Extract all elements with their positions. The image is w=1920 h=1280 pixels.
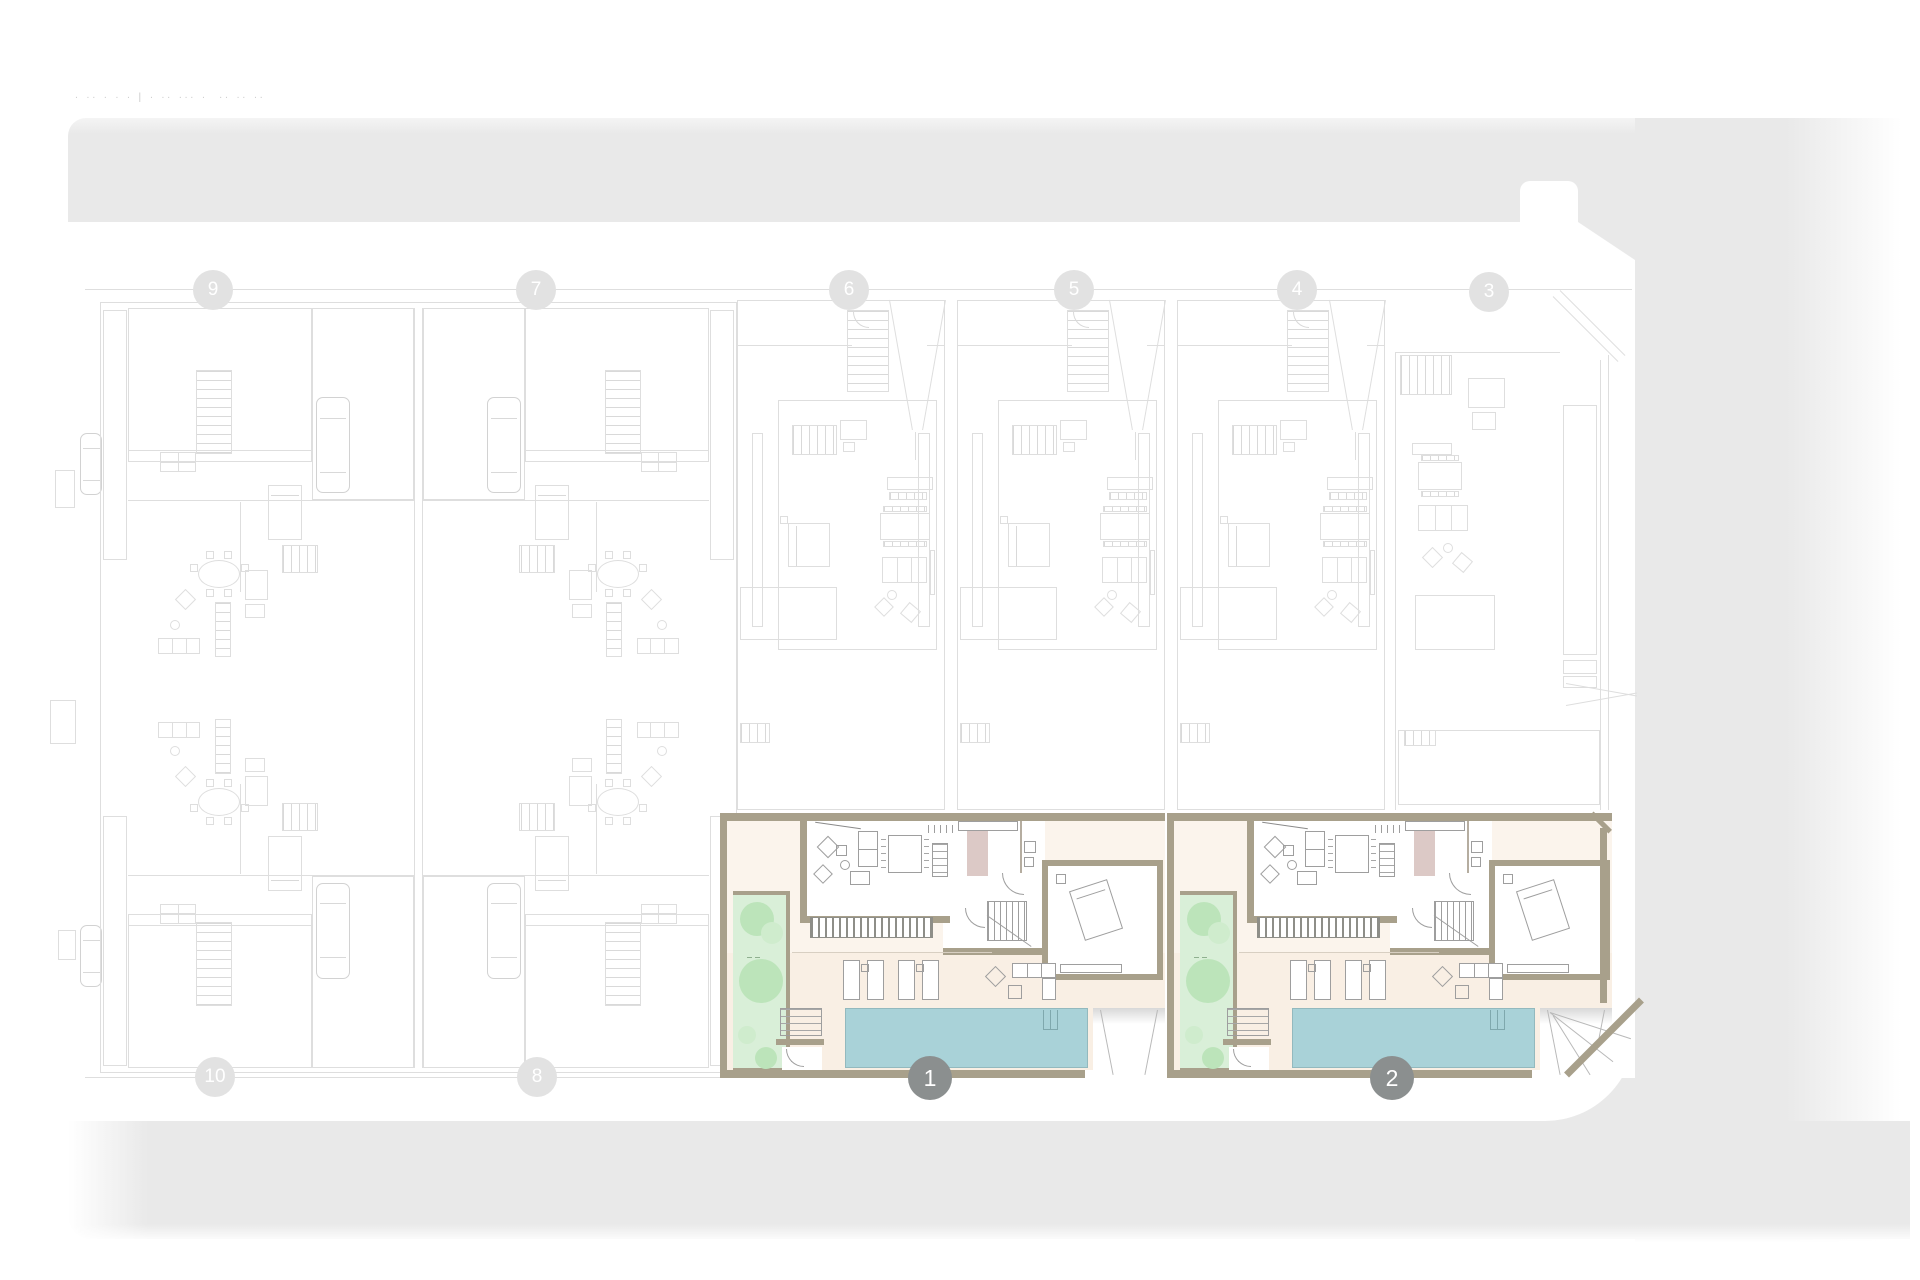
armchair xyxy=(1297,871,1317,885)
highlighted-unit xyxy=(1167,813,1612,1078)
dining-table xyxy=(597,788,639,816)
sofa xyxy=(858,831,878,867)
pergola-deck xyxy=(810,917,933,938)
villa-unit xyxy=(957,300,1165,810)
sun-lounger xyxy=(867,960,884,1000)
outbuilding xyxy=(58,930,76,960)
sun-lounger xyxy=(1290,960,1307,1000)
wall xyxy=(1223,1039,1271,1045)
stairs xyxy=(1400,355,1452,395)
tree xyxy=(1202,1047,1224,1069)
sofa xyxy=(1418,505,1468,531)
outbuilding xyxy=(55,470,75,508)
wardrobe xyxy=(196,370,232,454)
entry-stairs xyxy=(780,1008,822,1036)
bed xyxy=(535,485,569,540)
corridor xyxy=(1563,405,1597,655)
side-table xyxy=(840,860,850,870)
patio xyxy=(1415,595,1495,650)
bed xyxy=(268,485,302,540)
car xyxy=(80,433,102,495)
planter xyxy=(752,433,763,627)
sun-lounger xyxy=(1369,960,1386,1000)
kitchen-island xyxy=(932,843,948,877)
plot-marker-6[interactable]: 6 xyxy=(829,270,869,310)
sofa xyxy=(158,722,200,738)
partition xyxy=(1020,821,1022,873)
bed xyxy=(268,836,302,891)
wall xyxy=(720,813,727,1078)
site-plan-canvas: ∙ ∙∙ ∙ ∙ ∙ | ∙ ∙∙ ∙∙∙ ∙ ∙∙ ∙∙ ∙∙ xyxy=(0,0,1920,1280)
tree xyxy=(1186,959,1230,1003)
corner-villa-unit xyxy=(1395,300,1640,810)
plot-marker-label: 3 xyxy=(1484,281,1495,303)
stairs xyxy=(1012,425,1057,455)
sun-lounger xyxy=(1314,960,1331,1000)
bed xyxy=(1228,523,1270,567)
bedroom xyxy=(1489,860,1610,980)
outdoor-table xyxy=(1455,985,1469,999)
kitchen-counter xyxy=(958,821,1018,831)
tree xyxy=(739,959,783,1003)
wall xyxy=(1167,813,1174,1078)
bed xyxy=(788,523,830,567)
side-table xyxy=(1287,860,1297,870)
dining-table xyxy=(1418,462,1462,490)
duplex-unit xyxy=(420,686,737,1074)
outdoor-sofa xyxy=(1459,963,1503,978)
bed xyxy=(1516,879,1570,941)
kitchen xyxy=(606,719,622,774)
wardrobe xyxy=(605,370,641,454)
sun-lounger xyxy=(1345,960,1362,1000)
dining-table xyxy=(198,560,240,588)
plot-marker-8[interactable]: 8 xyxy=(517,1057,557,1097)
armchair xyxy=(175,589,196,610)
plot-marker-label: 7 xyxy=(531,279,542,301)
plot-marker-label: 1 xyxy=(924,1065,937,1092)
plot-marker-10[interactable]: 10 xyxy=(195,1057,235,1097)
planter xyxy=(1192,433,1203,627)
dining-table xyxy=(198,788,240,816)
sofa xyxy=(637,638,679,654)
outdoor-table xyxy=(1008,985,1022,999)
driveway xyxy=(312,308,414,500)
sun-lounger xyxy=(922,960,939,1000)
plot-marker-label: 2 xyxy=(1386,1065,1399,1092)
bedroom xyxy=(1042,860,1163,980)
driveway xyxy=(312,876,414,1068)
plot-marker-label: 6 xyxy=(844,279,855,301)
duplex-unit xyxy=(420,302,737,690)
wall xyxy=(1247,821,1254,923)
plot-marker-9[interactable]: 9 xyxy=(193,270,233,310)
bar-stools xyxy=(1375,825,1401,833)
driveway xyxy=(423,876,525,1068)
dining-table xyxy=(888,835,922,873)
armchair xyxy=(175,766,196,787)
plot-marker-label: 10 xyxy=(204,1066,225,1088)
kitchen-counter xyxy=(1412,443,1452,455)
tree xyxy=(755,1047,777,1069)
tree xyxy=(761,922,783,944)
stairs xyxy=(1232,425,1277,455)
wall xyxy=(1600,828,1607,1003)
wardrobe xyxy=(196,922,232,1006)
tree xyxy=(1208,922,1230,944)
side-table xyxy=(861,964,869,972)
dining-chairs xyxy=(924,839,929,869)
plot-marker-label: 4 xyxy=(1292,279,1303,301)
wall xyxy=(776,1039,824,1045)
entry-stairs xyxy=(1227,1008,1269,1036)
tree xyxy=(738,1026,756,1044)
highlighted-unit xyxy=(720,813,1165,1078)
kitchen-counter xyxy=(1405,821,1465,831)
pergola-deck xyxy=(1257,917,1380,938)
planter xyxy=(918,433,930,627)
plot-marker-5[interactable]: 5 xyxy=(1054,270,1094,310)
dining-chairs xyxy=(1371,839,1376,869)
terrace-line xyxy=(792,952,992,953)
stairs xyxy=(792,425,837,455)
plot-marker-4[interactable]: 4 xyxy=(1277,270,1317,310)
planter xyxy=(1358,433,1370,627)
duplex-unit xyxy=(100,302,417,690)
sofa xyxy=(158,638,200,654)
wall xyxy=(720,813,1165,821)
bed xyxy=(535,836,569,891)
sun-lounger xyxy=(843,960,860,1000)
plot-marker-label: 9 xyxy=(208,279,219,301)
nightstand xyxy=(1503,874,1513,884)
armchair xyxy=(850,871,870,885)
dining-chairs xyxy=(1328,839,1333,869)
dining-chairs xyxy=(881,839,886,869)
pool xyxy=(1292,1008,1535,1068)
stairs xyxy=(282,803,318,831)
tree xyxy=(1185,1026,1203,1044)
outdoor-sofa xyxy=(1042,978,1056,1000)
partition xyxy=(1467,821,1469,873)
armchair xyxy=(641,589,662,610)
bed xyxy=(1069,879,1123,941)
plot-marker-label: 5 xyxy=(1069,279,1080,301)
bench xyxy=(1507,964,1569,973)
basin xyxy=(1471,857,1481,867)
kitchen xyxy=(215,719,231,774)
duplex-unit xyxy=(100,686,417,1074)
wall xyxy=(1167,813,1612,821)
driveway xyxy=(1093,1008,1165,1078)
stairs xyxy=(519,545,555,573)
kitchen xyxy=(215,602,231,657)
wardrobe xyxy=(605,922,641,1006)
plot-marker-2[interactable]: 2 xyxy=(1370,1056,1414,1100)
coffee-table xyxy=(1283,845,1294,856)
plot-marker-1[interactable]: 1 xyxy=(908,1056,952,1100)
plot-marker-3[interactable]: 3 xyxy=(1469,272,1509,312)
outbuilding xyxy=(50,700,76,744)
driveway xyxy=(423,308,525,500)
villa-unit xyxy=(737,300,945,810)
dining-table xyxy=(597,560,639,588)
plot-marker-label: 8 xyxy=(532,1066,543,1088)
sofa xyxy=(1305,831,1325,867)
faded-plans-layer xyxy=(0,0,1920,1280)
toilet xyxy=(1471,841,1483,853)
pool xyxy=(845,1008,1088,1068)
outdoor-sofa xyxy=(1489,978,1503,1000)
sun-lounger xyxy=(898,960,915,1000)
bench xyxy=(1060,964,1122,973)
kitchen xyxy=(606,602,622,657)
street-line-bottom xyxy=(85,1077,737,1078)
basin xyxy=(1024,857,1034,867)
dining-table xyxy=(1335,835,1369,873)
armchair xyxy=(1452,552,1473,573)
villa-unit xyxy=(1177,300,1385,810)
car xyxy=(80,925,102,987)
side-table xyxy=(1363,964,1371,972)
bar-stools xyxy=(928,825,954,833)
toilet xyxy=(1024,841,1036,853)
armchair xyxy=(641,766,662,787)
side-table xyxy=(1308,964,1316,972)
wall xyxy=(800,821,807,923)
wardrobe xyxy=(1414,831,1435,876)
planter xyxy=(972,433,983,627)
nightstand xyxy=(1056,874,1066,884)
plot-marker-7[interactable]: 7 xyxy=(516,270,556,310)
sofa xyxy=(637,722,679,738)
armchair xyxy=(1422,547,1443,568)
wardrobe xyxy=(967,831,988,876)
side-table xyxy=(916,964,924,972)
stairs xyxy=(519,803,555,831)
outdoor-sofa xyxy=(1012,963,1056,978)
planter xyxy=(1138,433,1150,627)
bed xyxy=(1008,523,1050,567)
stairs xyxy=(282,545,318,573)
coffee-table xyxy=(836,845,847,856)
kitchen-island xyxy=(1379,843,1395,877)
terrace-line xyxy=(1239,952,1439,953)
